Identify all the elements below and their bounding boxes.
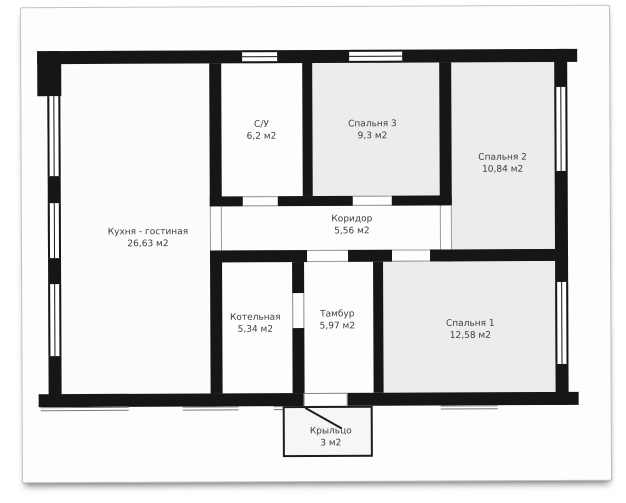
- door-entry-main: [304, 393, 348, 406]
- passage-kitchen-corridor: [210, 206, 222, 250]
- room-label-bathroom: С/У 6,2 м2: [247, 120, 277, 143]
- room-name: Котельная: [230, 313, 281, 325]
- window-top-bathroom: [242, 50, 277, 63]
- window-top-bedroom3: [349, 50, 402, 63]
- wall-vestibule-right: [373, 262, 384, 393]
- room-area: 3 м2: [310, 438, 352, 450]
- room-area: 9,3 м2: [348, 131, 397, 143]
- room-name: Спальня 3: [348, 119, 397, 131]
- door-vestibule: [307, 250, 348, 262]
- window-sill-bottom-4: [441, 405, 498, 409]
- room-name: С/У: [247, 120, 277, 132]
- room-name: Крыльцо: [310, 426, 352, 438]
- wall-kitchen-right-upper: [209, 63, 222, 206]
- room-name: Спальня 1: [446, 319, 495, 331]
- wall-bedroom2-bottom: [440, 249, 568, 262]
- door-boiler: [292, 293, 304, 328]
- room-area: 26,63 м2: [108, 239, 188, 251]
- door-bedroom1: [392, 249, 430, 261]
- window-left-2: [48, 203, 61, 258]
- screenshot-frame: Кухня - гостиная 26,63 м2 С/У 6,2 м2 Спа…: [0, 0, 626, 502]
- room-area: 5,34 м2: [230, 324, 281, 336]
- wall-bedroom2-left: [439, 62, 452, 205]
- room-corridor: [210, 205, 440, 250]
- door-bedroom2: [440, 205, 452, 249]
- door-bedroom3: [353, 196, 392, 206]
- wall-bathroom-right: [302, 63, 313, 196]
- wall-kitchen-right-lower: [210, 250, 223, 393]
- room-label-bedroom-1: Спальня 1 12,58 м2: [446, 319, 495, 342]
- room-label-porch: Крыльцо 3 м2: [310, 426, 352, 449]
- room-area: 5,97 м2: [320, 321, 355, 333]
- window-left-3: [48, 284, 61, 356]
- window-right-bedroom2: [554, 87, 567, 171]
- room-label-bedroom-3: Спальня 3 9,3 м2: [348, 119, 397, 142]
- room-label-boiler: Котельная 5,34 м2: [230, 313, 281, 336]
- window-left-1: [47, 96, 60, 176]
- room-name: Спальня 2: [478, 153, 527, 165]
- room-name: Тамбур: [320, 309, 355, 321]
- room-name: Коридор: [331, 214, 372, 226]
- room-label-corridor: Коридор 5,56 м2: [331, 214, 372, 237]
- room-name: Кухня - гостиная: [108, 227, 188, 239]
- window-sill-bottom-1: [41, 407, 129, 411]
- room-area: 5,56 м2: [331, 226, 372, 238]
- room-label-vestibule: Тамбур 5,97 м2: [320, 309, 356, 332]
- wall-corner-top-left: [37, 51, 61, 96]
- room-area: 10,84 м2: [478, 164, 527, 176]
- window-right-bedroom1: [555, 282, 568, 364]
- wall-exterior-top: [37, 49, 577, 64]
- room-area: 6,2 м2: [247, 131, 277, 143]
- door-bathroom: [243, 196, 278, 206]
- window-sill-bottom-2: [183, 406, 239, 410]
- room-area: 12,58 м2: [446, 330, 495, 342]
- floor-plan-photo: Кухня - гостиная 26,63 м2 С/У 6,2 м2 Спа…: [0, 0, 626, 503]
- room-label-bedroom-2: Спальня 2 10,84 м2: [478, 153, 527, 176]
- room-label-kitchen-living: Кухня - гостиная 26,63 м2: [108, 227, 189, 250]
